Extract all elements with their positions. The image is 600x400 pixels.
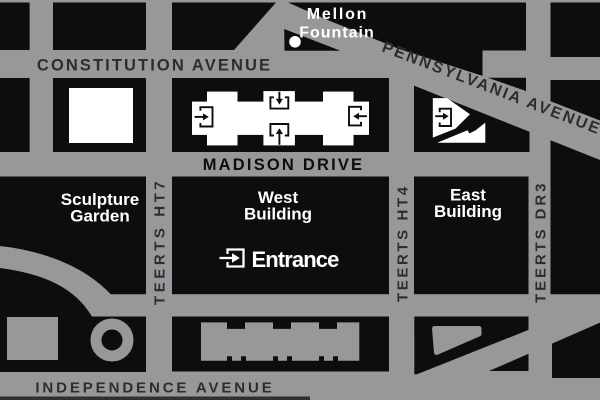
svg-text:Mellon: Mellon — [307, 6, 368, 23]
svg-text:Building: Building — [244, 205, 312, 224]
svg-text:CONSTITUTION AVENUE: CONSTITUTION AVENUE — [37, 57, 272, 75]
svg-text:INDEPENDENCE AVENUE: INDEPENDENCE AVENUE — [35, 380, 274, 397]
svg-text:Building: Building — [434, 202, 502, 221]
svg-text:MADISON DRIVE: MADISON DRIVE — [203, 156, 365, 174]
svg-text:Garden: Garden — [70, 207, 130, 226]
svg-text:TEERTS HT4: TEERTS HT4 — [395, 184, 412, 302]
svg-text:Entrance: Entrance — [252, 247, 340, 272]
svg-text:Fountain: Fountain — [299, 25, 375, 42]
svg-text:TEERTS HT7: TEERTS HT7 — [152, 178, 169, 305]
svg-text:TEERTS DR3: TEERTS DR3 — [533, 181, 550, 303]
